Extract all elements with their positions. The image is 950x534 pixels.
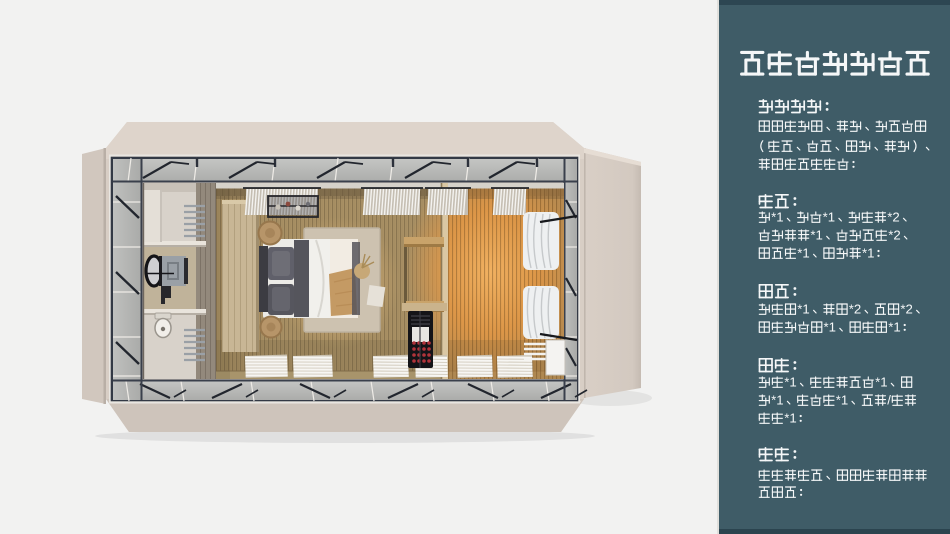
svg-text:*1: *1	[836, 393, 848, 408]
svg-text:*1: *1	[810, 228, 822, 243]
svg-text:*2: *2	[900, 302, 912, 317]
svg-text:*1: *1	[862, 246, 874, 261]
svg-text:*2: *2	[849, 302, 861, 317]
svg-text:*1: *1	[771, 393, 783, 408]
svg-text:*1: *1	[797, 246, 809, 261]
svg-text:*2: *2	[888, 228, 900, 243]
svg-text:*1: *1	[888, 320, 900, 335]
svg-text:*1: *1	[771, 210, 783, 225]
svg-text:*1: *1	[784, 375, 796, 390]
svg-text:*1: *1	[824, 320, 836, 335]
svg-text:*2: *2	[887, 210, 899, 225]
svg-text:*1: *1	[823, 210, 835, 225]
svg-text:*1: *1	[784, 411, 796, 426]
svg-text:*1: *1	[797, 302, 809, 317]
svg-text:*1: *1	[875, 375, 887, 390]
svg-text:/: /	[887, 393, 891, 408]
